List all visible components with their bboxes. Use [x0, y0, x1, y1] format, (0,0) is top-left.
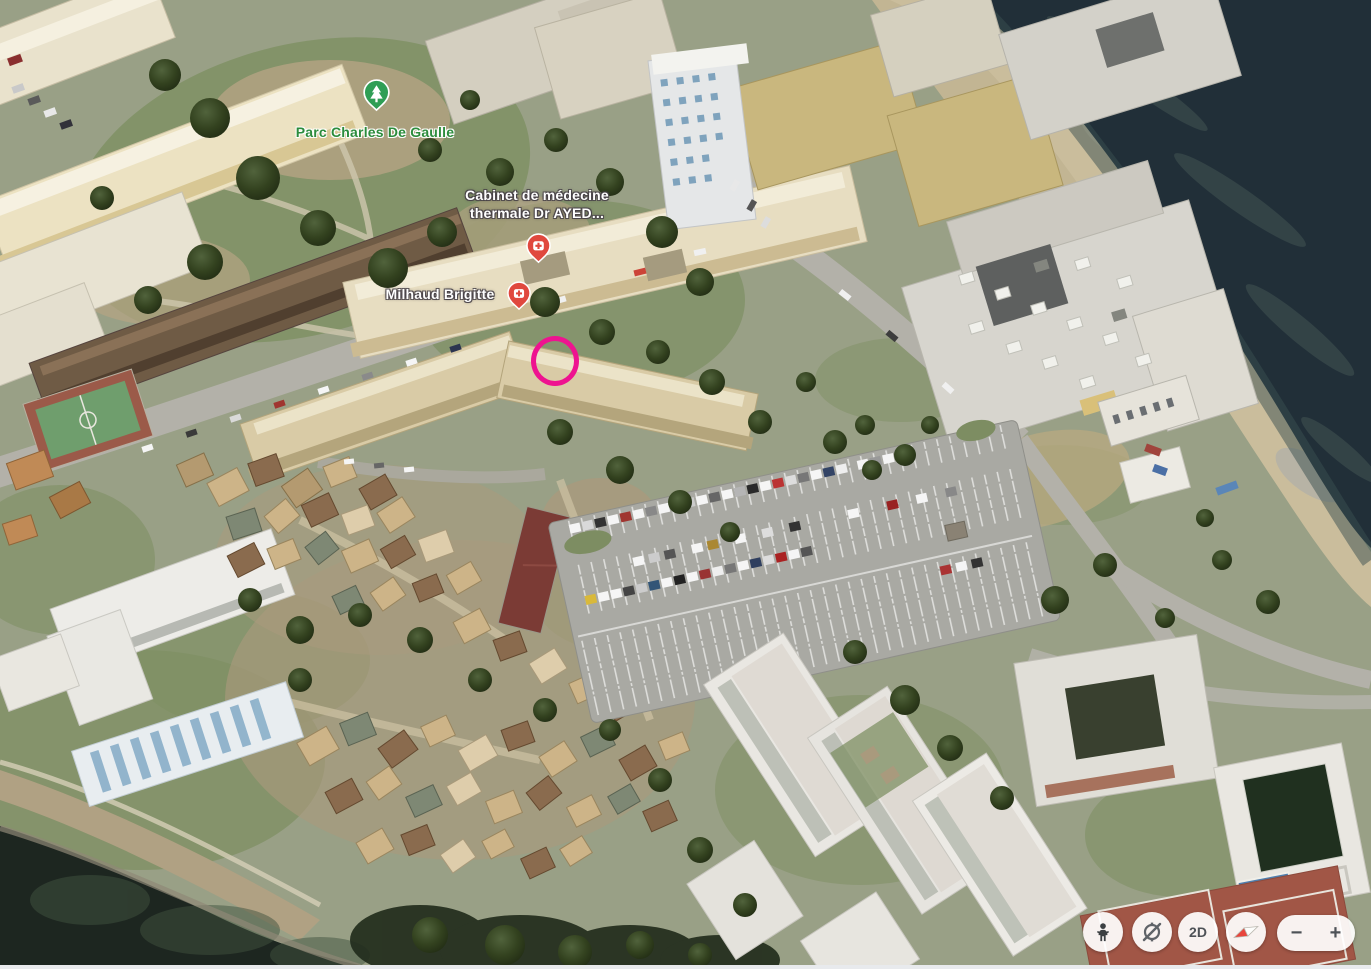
window-edge-strip	[0, 965, 1371, 969]
poi-label-clinic-line1: Cabinet de médecine	[437, 186, 637, 204]
poi-label-clinic[interactable]: Cabinet de médecine thermale Dr AYED...	[437, 186, 637, 222]
compass-needle-icon	[1231, 917, 1261, 947]
pegman-icon	[1092, 921, 1114, 943]
pegman-button[interactable]	[1083, 912, 1123, 952]
rotate-view-button[interactable]	[1132, 912, 1172, 952]
zoom-control: − +	[1277, 915, 1355, 951]
park-pin-icon[interactable]	[363, 79, 390, 117]
satellite-scene	[0, 0, 1371, 969]
zoom-out-button[interactable]: −	[1277, 915, 1316, 951]
health-pin-icon[interactable]	[526, 233, 551, 269]
view-2d-button[interactable]: 2D	[1178, 912, 1218, 952]
health-pin-icon[interactable]	[507, 281, 531, 316]
map-viewport[interactable]: Parc Charles De Gaulle Cabinet de médeci…	[0, 0, 1371, 969]
compass-button[interactable]	[1226, 912, 1266, 952]
annotation-circle	[531, 336, 579, 386]
orbit-rotate-icon	[1140, 920, 1164, 944]
poi-label-park[interactable]: Parc Charles De Gaulle	[275, 124, 475, 140]
zoom-in-button[interactable]: +	[1316, 915, 1355, 951]
view-2d-label: 2D	[1189, 924, 1207, 940]
poi-label-clinic-line2: thermale Dr AYED...	[437, 204, 637, 222]
